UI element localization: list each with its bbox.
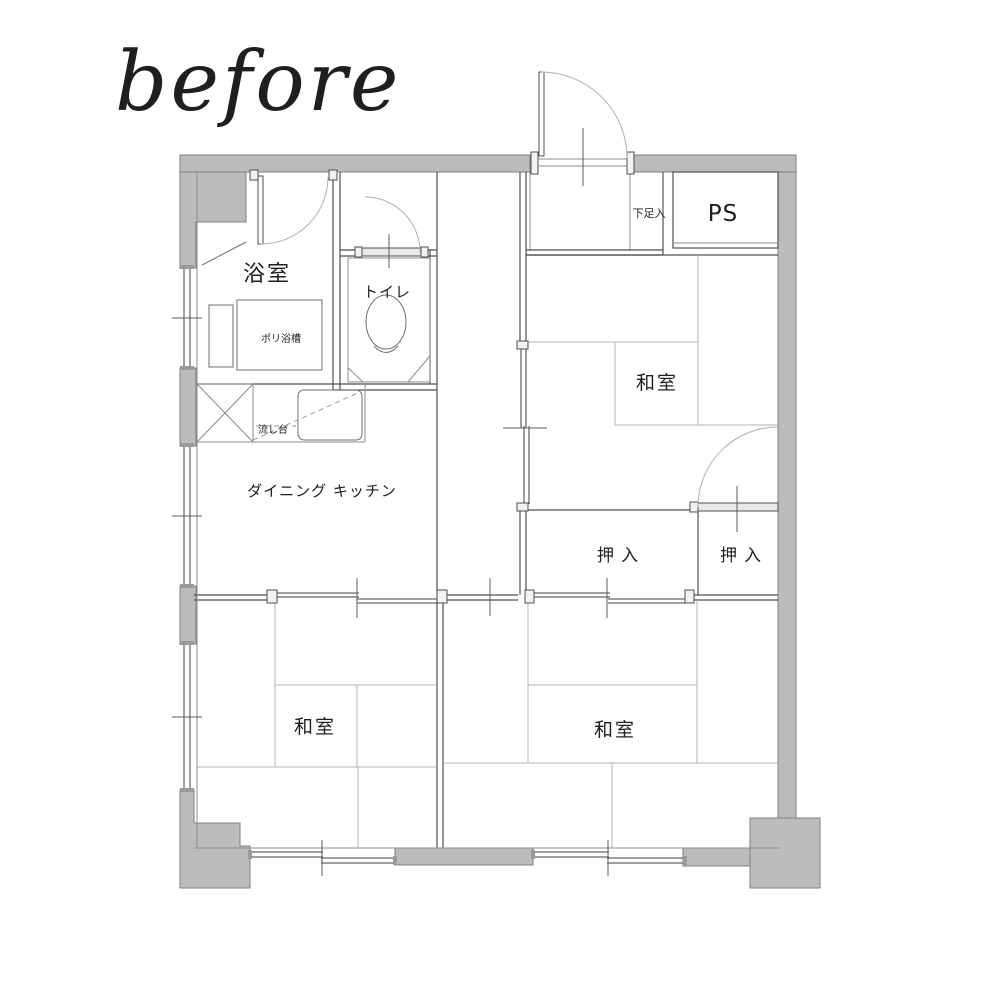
window-end-cap [180,366,194,370]
door-jamb [627,152,634,174]
room-label-dining-kitchen: ダイニング キッチン [247,482,397,500]
entrance-door-arc-icon [541,72,627,158]
wall-chamfer [348,368,363,382]
wall-bottom-segment [683,848,750,866]
wall-left-segment [180,368,196,446]
entrance-door-leaf [539,72,544,156]
wall-top-right [632,155,796,172]
room-label-washitsu-bottom-right: 和室 [594,719,636,741]
room-label-closet-left: 押入 [597,546,645,566]
window-end-cap [531,850,535,859]
door-jamb [690,502,698,512]
window-end-cap [683,856,687,865]
bathroom-door-leaf [258,176,263,244]
door-jamb [421,247,428,257]
doors [250,72,778,618]
room-label-toilet: トイレ [363,283,411,301]
toilet-door-leaf [362,248,422,256]
room-label-washitsu-top-right: 和室 [636,372,678,394]
closet-door-leaf [698,503,778,511]
wall-corner-top-left [180,172,246,268]
room-label-bathroom: 浴室 [243,262,291,287]
toilet-fixtures [348,258,430,382]
wall-left-segment [180,586,196,644]
door-jamb [267,590,277,603]
wall-bottom-segment [395,848,533,865]
window-end-cap [180,584,194,588]
closet-door-arc-icon [698,427,778,507]
window-end-cap [180,265,194,269]
wall-right [778,172,796,818]
door-jamb [685,590,694,603]
toilet-room-inset [348,258,430,382]
label-bathtub: ポリ浴槽 [261,332,301,345]
pillar-bottom-left [180,790,250,888]
wall-chamfer [202,242,246,265]
page-title: before [115,35,401,130]
label-shoe-cabinet: 下足入 [633,207,666,220]
door-jamb [525,590,534,603]
room-labels: before 浴室 トイレ ポリ浴槽 流し台 下足入 PS 和室 押入 押入 ダ… [115,35,768,741]
toilet-door-arc-icon [365,197,420,252]
floor-plan-page: before 浴室 トイレ ポリ浴槽 流し台 下足入 PS 和室 押入 押入 ダ… [0,0,1000,1000]
room-label-closet-right: 押入 [720,546,768,566]
door-jamb [531,152,538,174]
wall-chamfer [408,356,430,382]
door-jamb [437,590,447,603]
window-end-cap [393,856,397,865]
door-jamb [329,170,337,180]
door-jamb [250,170,258,180]
room-label-washitsu-bottom-left: 和室 [294,716,336,738]
window-end-cap [180,788,194,792]
floor-plan-drawing: before 浴室 トイレ ポリ浴槽 流し台 下足入 PS 和室 押入 押入 ダ… [0,0,1000,1000]
pillar-bottom-right [750,818,820,888]
door-jamb [517,341,528,349]
sink-basin [298,390,362,440]
wall-top-left [180,155,530,172]
window-end-cap [180,443,194,447]
window-end-cap [248,850,252,859]
door-jamb [355,247,362,257]
toilet-bowl [366,295,406,349]
window-end-cap [180,641,194,645]
bath-counter [209,305,233,367]
bathroom-door-arc-icon [261,177,328,244]
label-pipe-space: PS [708,201,738,227]
door-jamb [517,503,528,511]
label-sink: 流し台 [258,423,288,436]
